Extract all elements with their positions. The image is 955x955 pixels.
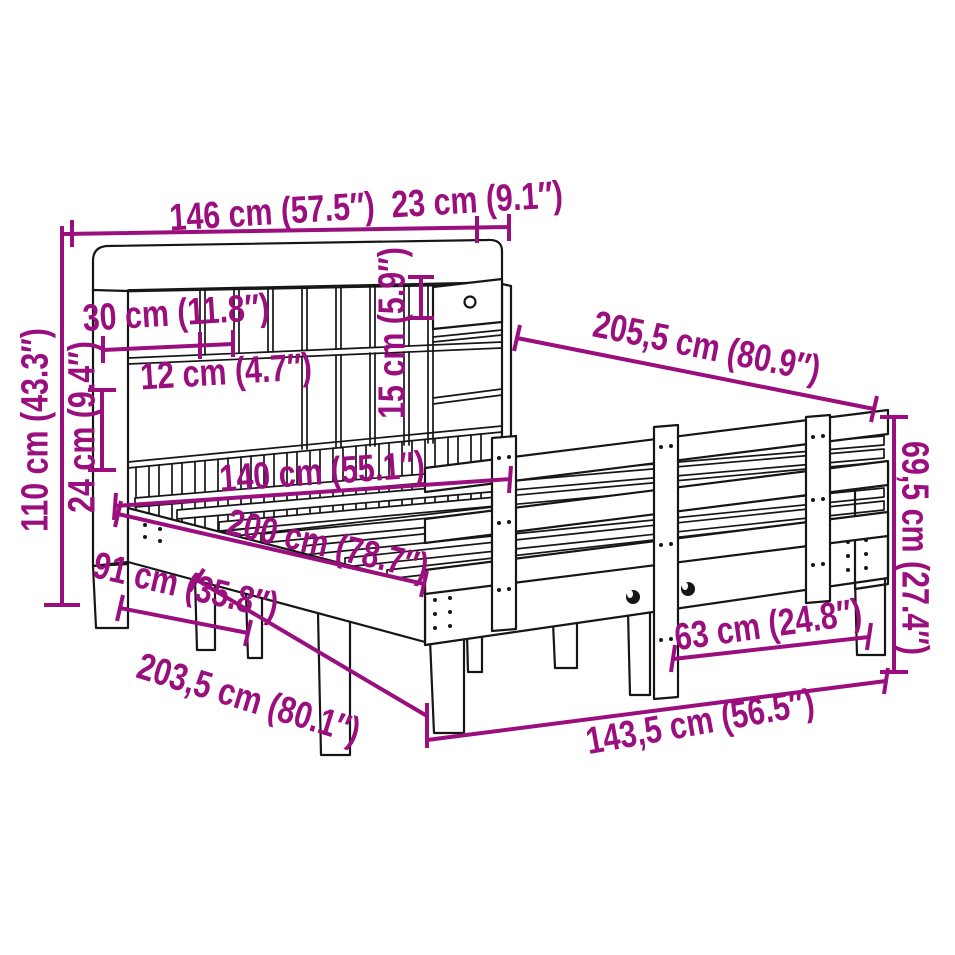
leg xyxy=(553,620,577,668)
headboard-crown xyxy=(93,240,502,292)
dim-label-headboard-height: 110 cm (43.3″) xyxy=(14,328,56,532)
rail-post xyxy=(492,436,516,631)
diagram-canvas: 146 cm (57.5″) 23 cm (9.1″) 110 cm (43.3… xyxy=(0,0,955,955)
dim-label-slat-panel-height: 24 cm (9.4″) xyxy=(61,341,103,513)
dim-label-headboard-top-depth: 23 cm (9.1″) xyxy=(390,174,564,226)
dim-label-drawer-height: 15 cm (5.9″) xyxy=(371,247,413,419)
headboard-mid-dividers xyxy=(302,285,433,449)
rail-post xyxy=(806,415,830,603)
under-drawer-shelves xyxy=(433,330,502,404)
dim-label-side-rail-height: 69,5 cm (27.4″) xyxy=(894,441,936,655)
dim-label-cubby-width: 12 cm (4.7″) xyxy=(139,346,313,398)
dim-label-side-rail-length: 143,5 cm (56.5″) xyxy=(583,681,818,762)
headboard-drawer xyxy=(433,279,502,329)
leg xyxy=(430,637,464,733)
side-rail xyxy=(425,410,888,699)
dimension-diagram: 146 cm (57.5″) 23 cm (9.1″) 110 cm (43.3… xyxy=(0,0,955,955)
leg xyxy=(628,610,650,695)
